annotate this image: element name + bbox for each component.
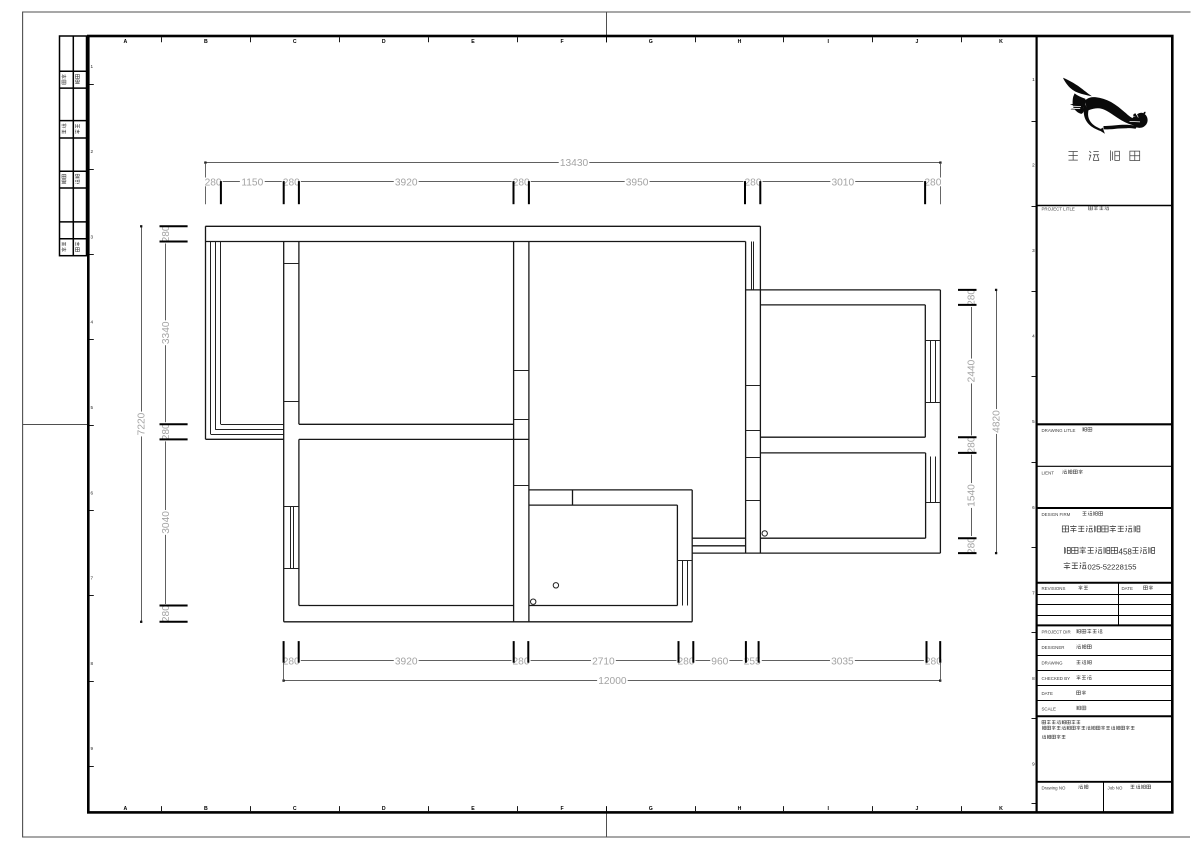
svg-text:280: 280 — [745, 177, 762, 188]
svg-text:2: 2 — [1032, 162, 1035, 167]
svg-text:280: 280 — [161, 225, 172, 242]
svg-text:B: B — [204, 806, 208, 812]
svg-text:280: 280 — [283, 656, 300, 667]
svg-text:2710: 2710 — [592, 656, 615, 667]
svg-text:J: J — [915, 806, 918, 812]
svg-text:Drawing NO: Drawing NO — [1042, 785, 1066, 790]
svg-text:3040: 3040 — [161, 511, 172, 534]
svg-text:DATE: DATE — [1122, 586, 1133, 591]
svg-text:9: 9 — [1032, 762, 1035, 767]
svg-text:7: 7 — [91, 576, 94, 581]
svg-text:1150: 1150 — [241, 177, 263, 188]
svg-text:F: F — [561, 806, 564, 812]
svg-text:280: 280 — [513, 177, 530, 188]
svg-text:7: 7 — [1032, 590, 1035, 595]
svg-text:F: F — [561, 39, 564, 45]
svg-text:1540: 1540 — [967, 484, 978, 507]
svg-text:SCALE: SCALE — [1042, 706, 1056, 711]
svg-text:DESIGNER: DESIGNER — [1042, 645, 1065, 650]
svg-text:7220: 7220 — [137, 412, 148, 435]
svg-text:G: G — [649, 806, 653, 812]
svg-text:3950: 3950 — [626, 177, 649, 188]
svg-text:DRAWING: DRAWING — [1042, 661, 1064, 666]
svg-text:13430: 13430 — [560, 158, 589, 169]
svg-text:280: 280 — [967, 289, 978, 306]
svg-text:8: 8 — [1032, 676, 1035, 681]
svg-text:PROJECT DIR: PROJECT DIR — [1042, 630, 1071, 635]
svg-text:B: B — [204, 39, 208, 45]
svg-text:C: C — [293, 39, 297, 45]
svg-text:280: 280 — [283, 177, 300, 188]
svg-text:J: J — [915, 39, 918, 45]
svg-text:DESIGN FIRM: DESIGN FIRM — [1042, 512, 1071, 517]
svg-text:5: 5 — [91, 405, 94, 410]
svg-text:E: E — [471, 806, 475, 812]
svg-text:4: 4 — [1032, 334, 1035, 339]
svg-text:2: 2 — [91, 149, 94, 154]
svg-text:H: H — [738, 39, 742, 45]
svg-text:C: C — [293, 806, 297, 812]
svg-text:D: D — [382, 39, 386, 45]
svg-text:D: D — [382, 806, 386, 812]
svg-text:DATE: DATE — [1042, 691, 1053, 696]
svg-text:CHECKED BY: CHECKED BY — [1042, 676, 1071, 681]
svg-text:280: 280 — [513, 656, 530, 667]
svg-text:4: 4 — [91, 320, 94, 325]
svg-text:280: 280 — [967, 537, 978, 554]
svg-text:2440: 2440 — [967, 359, 978, 382]
svg-text:6: 6 — [91, 490, 94, 495]
svg-text:458: 458 — [1119, 547, 1133, 556]
svg-text:12000: 12000 — [598, 676, 627, 687]
svg-text:3010: 3010 — [831, 177, 854, 188]
svg-text:REVISIONS: REVISIONS — [1042, 586, 1066, 591]
svg-text:K: K — [999, 806, 1003, 812]
svg-text:H: H — [738, 806, 742, 812]
svg-text:5: 5 — [1032, 419, 1035, 424]
svg-text:9: 9 — [91, 746, 94, 751]
svg-text:280: 280 — [678, 656, 695, 667]
svg-text:280: 280 — [161, 423, 172, 440]
svg-text:960: 960 — [711, 656, 728, 667]
svg-text:E: E — [471, 39, 475, 45]
svg-text:G: G — [649, 39, 653, 45]
svg-text:3: 3 — [91, 234, 94, 239]
svg-text:3920: 3920 — [395, 656, 418, 667]
svg-text:A: A — [124, 39, 128, 45]
svg-text:6: 6 — [1032, 505, 1035, 510]
svg-text:8: 8 — [91, 661, 94, 666]
svg-text:280: 280 — [924, 177, 941, 188]
svg-text:DRAWING LITLE: DRAWING LITLE — [1042, 428, 1076, 433]
svg-text:025-52228155: 025-52228155 — [1088, 563, 1137, 572]
svg-text:A: A — [124, 806, 128, 812]
svg-text:Job NO: Job NO — [1108, 785, 1123, 790]
svg-text:280: 280 — [205, 177, 222, 188]
svg-text:280: 280 — [161, 605, 172, 622]
svg-text:3: 3 — [1032, 248, 1035, 253]
svg-text:280: 280 — [967, 436, 978, 453]
svg-text:3340: 3340 — [161, 321, 172, 344]
svg-text:4820: 4820 — [992, 410, 1003, 433]
svg-text:1: 1 — [91, 64, 94, 69]
svg-text:PROJECT LITLE: PROJECT LITLE — [1042, 207, 1075, 212]
svg-text:3035: 3035 — [831, 656, 854, 667]
svg-text:LIENT: LIENT — [1042, 470, 1055, 475]
svg-text:K: K — [999, 39, 1003, 45]
svg-text:3920: 3920 — [395, 177, 418, 188]
svg-text:1: 1 — [1032, 77, 1035, 82]
